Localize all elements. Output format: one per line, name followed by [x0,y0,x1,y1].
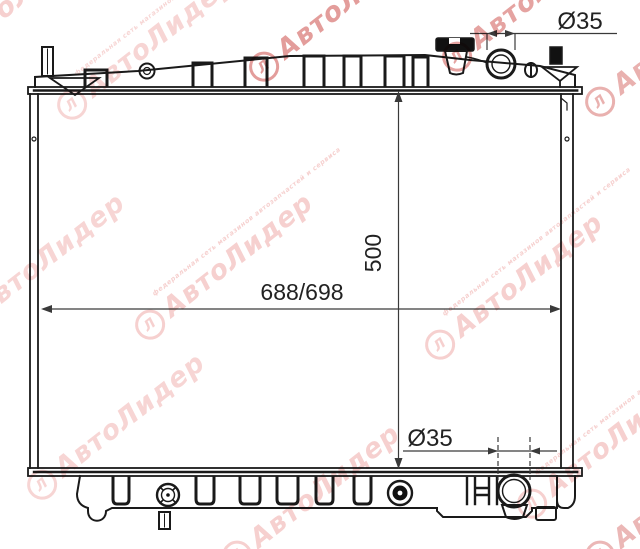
right-side-plate [561,94,573,468]
drain-plug-left [157,484,179,506]
drain-plug-right [388,481,412,505]
hose-clamp [525,63,537,77]
bottom-left-pin [159,512,170,529]
label-core-width: 688/698 [260,279,343,305]
dimension-core-width [41,305,561,313]
dimension-core-height [395,91,403,469]
left-side-plate [30,94,38,468]
label-bottom-port-diameter: Ø35 [407,425,452,452]
outlet-bracket [467,478,497,504]
top-right-pin [550,47,562,64]
label-core-height: 500 [360,234,386,272]
top-left-mounting-pin [42,47,53,76]
bottom-header-plate [28,468,582,476]
radiator-catalog-image: Ø35 500 688/698 Ø35 Л АвтоЛидер федераль… [0,0,640,549]
bottom-tank-slots [113,478,371,504]
label-top-port-diameter: Ø35 [557,8,602,35]
top-header-plate [28,87,582,94]
radiator-diagram: Ø35 500 688/698 Ø35 [0,0,640,549]
outlet-port [498,475,530,519]
bottom-tank [77,475,575,529]
